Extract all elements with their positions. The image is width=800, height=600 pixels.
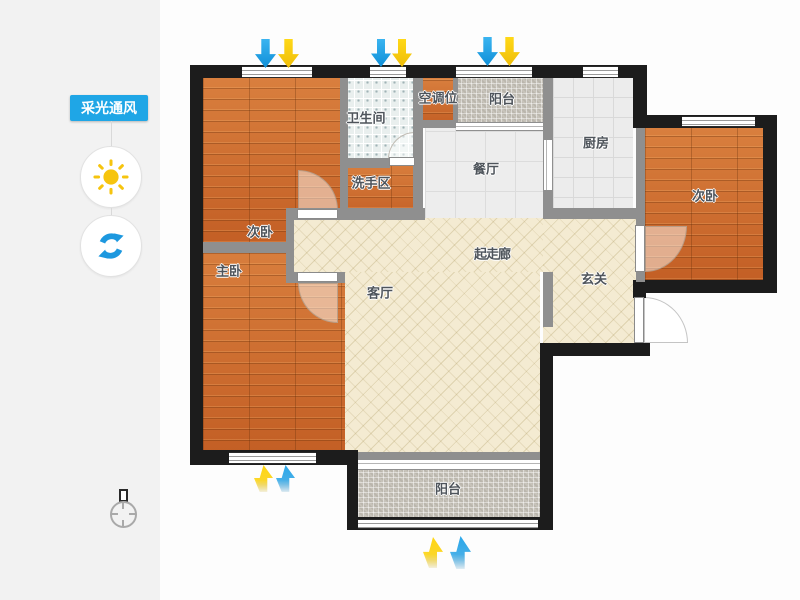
wall <box>633 283 646 298</box>
door-leaf <box>297 209 338 219</box>
door-leaf <box>389 157 415 166</box>
rotate-refresh-icon <box>93 228 129 264</box>
room-label-ac-spot: 空调位 <box>418 88 457 107</box>
room-label-foyer: 玄关 <box>581 269 607 288</box>
room-label-corridor: 起走廊 <box>474 244 510 263</box>
room-label-living-room: 客厅 <box>367 283 393 302</box>
sun-button[interactable] <box>80 146 142 208</box>
sliding-door <box>358 459 540 470</box>
wall <box>763 115 777 293</box>
wall <box>345 158 390 168</box>
room-label-dining-room: 餐厅 <box>473 159 499 178</box>
wall <box>636 128 645 225</box>
door-leaf <box>297 272 338 282</box>
wall <box>358 452 540 459</box>
floorplan-viewer: 次卧 主卧 卫生间 洗手区 空调位 阳台 餐厅 厨房 次卧 起走廊 玄关 客厅 … <box>0 0 800 600</box>
wall <box>540 343 650 356</box>
wall <box>190 65 203 450</box>
window <box>358 519 538 529</box>
compass-tick <box>112 513 118 515</box>
wall <box>420 120 456 128</box>
tool-tab-lighting-ventilation[interactable]: 采光通风 <box>70 95 148 121</box>
sun-icon <box>92 158 130 196</box>
room-label-balcony-top: 阳台 <box>489 89 515 108</box>
rotate-button[interactable] <box>80 215 142 277</box>
window <box>682 116 755 127</box>
window <box>583 66 618 78</box>
compass-tick <box>129 513 135 515</box>
compass-tick <box>122 503 124 509</box>
sliding-door <box>456 122 543 131</box>
wall <box>540 345 553 530</box>
room-label-bedroom-second-right: 次卧 <box>692 186 718 205</box>
room-label-bathroom: 卫生间 <box>346 108 385 127</box>
wall <box>203 242 286 253</box>
window <box>456 66 532 78</box>
compass-tick <box>122 520 124 526</box>
door-leaf-entrance <box>634 297 644 343</box>
window <box>229 452 316 464</box>
wall <box>633 280 777 293</box>
window <box>370 66 406 78</box>
room-label-kitchen: 厨房 <box>583 133 609 152</box>
room-label-bedroom-second-left: 次卧 <box>247 222 273 241</box>
connector-line <box>111 121 112 146</box>
wall <box>636 272 645 282</box>
sliding-door <box>543 140 553 190</box>
window <box>242 66 312 78</box>
room-label-wash-area: 洗手区 <box>351 173 390 192</box>
wall <box>340 78 348 210</box>
wall <box>543 272 553 327</box>
door-leaf <box>635 225 645 272</box>
room-label-bedroom-master: 主卧 <box>216 261 242 280</box>
room-label-balcony-bottom: 阳台 <box>435 479 461 498</box>
connector-line <box>111 208 112 215</box>
wall <box>543 208 637 219</box>
